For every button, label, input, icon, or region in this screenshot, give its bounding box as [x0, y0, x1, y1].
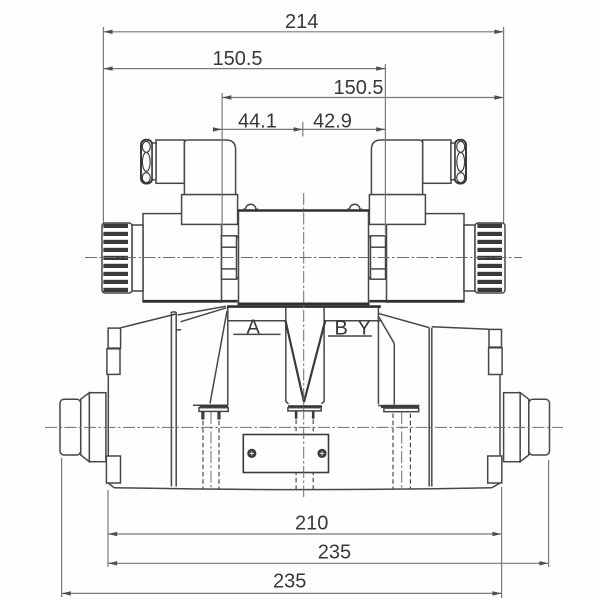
- svg-text:214: 214: [285, 11, 318, 33]
- svg-text:A: A: [247, 317, 261, 339]
- svg-text:235: 235: [318, 542, 351, 564]
- svg-text:150.5: 150.5: [334, 77, 384, 99]
- svg-text:235: 235: [273, 571, 306, 593]
- svg-text:150.5: 150.5: [213, 48, 263, 70]
- svg-text:42.9: 42.9: [313, 110, 352, 132]
- svg-text:44.1: 44.1: [238, 110, 277, 132]
- svg-text:210: 210: [295, 513, 328, 535]
